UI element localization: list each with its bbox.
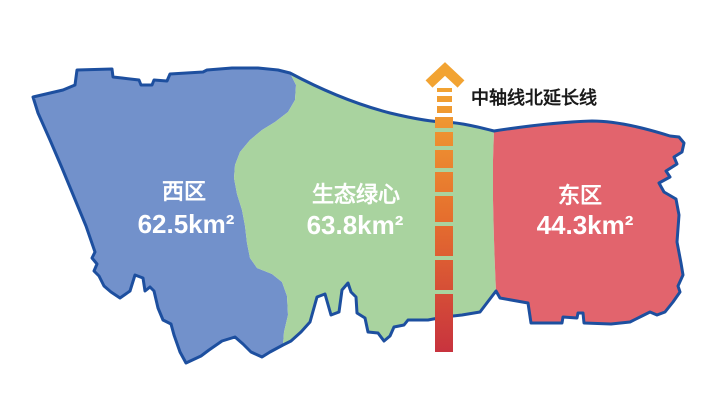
axis-dash: [435, 172, 453, 192]
east-region-area: 44.3km²: [537, 210, 634, 240]
green-heart-region-label: 生态绿心 63.8km²: [307, 182, 404, 240]
north-arrow-icon: [429, 69, 461, 84]
axis-dash: [435, 294, 453, 352]
axis-dash: [437, 88, 452, 92]
axis-dash: [435, 150, 453, 168]
axis-dash: [435, 132, 453, 146]
axis-dash: [435, 196, 453, 222]
green-heart-region-area: 63.8km²: [307, 210, 404, 240]
axis-dash: [437, 106, 452, 113]
west-region-name: 西区: [162, 179, 206, 204]
map-canvas: 中轴线北延长线 西区 62.5km² 生态绿心 63.8km² 东区 44.3k…: [0, 0, 718, 407]
axis-dash: [437, 96, 452, 102]
west-region-area: 62.5km²: [138, 209, 235, 239]
east-region-name: 东区: [558, 183, 602, 208]
green-heart-region-name: 生态绿心: [312, 182, 400, 207]
axis-dash: [435, 226, 453, 256]
axis-label: 中轴线北延长线: [471, 87, 597, 108]
axis-dash: [435, 117, 453, 128]
axis-dash: [435, 260, 453, 290]
